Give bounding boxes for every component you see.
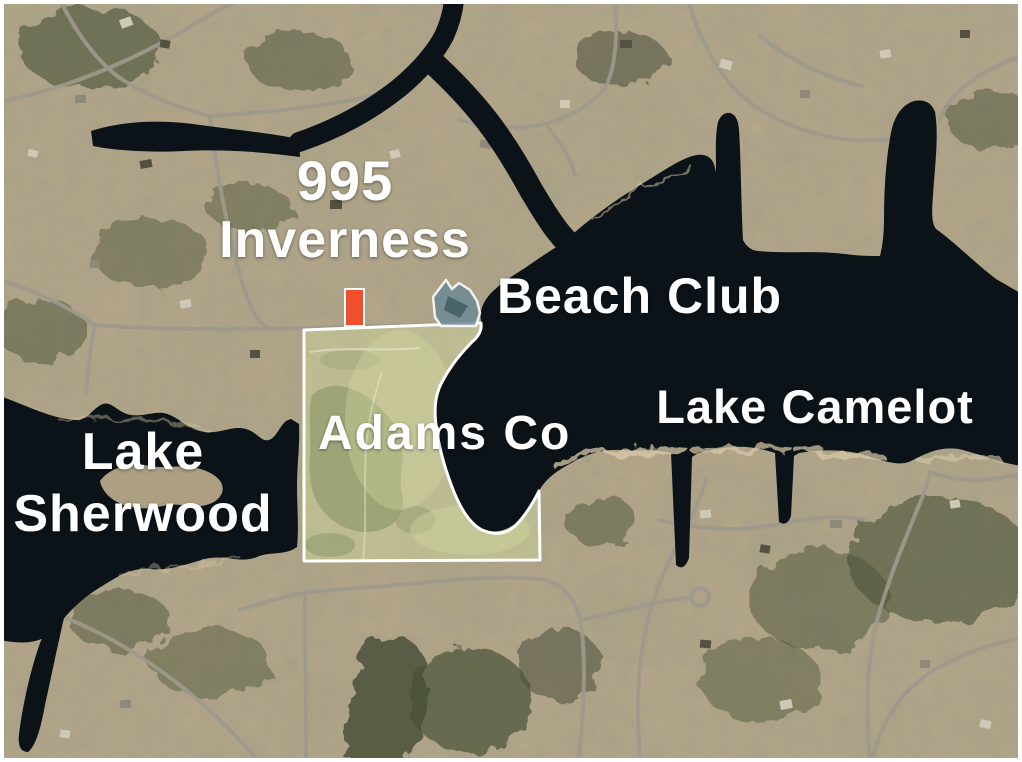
label-lake-sherwood: Lake Sherwood [13,421,272,545]
label-lake-sherwood-line1: Lake [13,421,272,483]
label-beach-club: Beach Club [497,270,782,322]
label-lake-camelot: Lake Camelot [656,382,974,432]
label-adams-co: Adams Co [318,408,571,460]
marker-995-lot [345,289,364,326]
label-property-number: 995 [219,152,471,210]
label-lake-sherwood-line2: Sherwood [13,483,272,545]
label-property-street: Inverness [219,210,471,270]
label-995-inverness: 995 Inverness [219,152,471,270]
aerial-map: 995 Inverness Beach Club Lake Camelot La… [0,0,1022,762]
